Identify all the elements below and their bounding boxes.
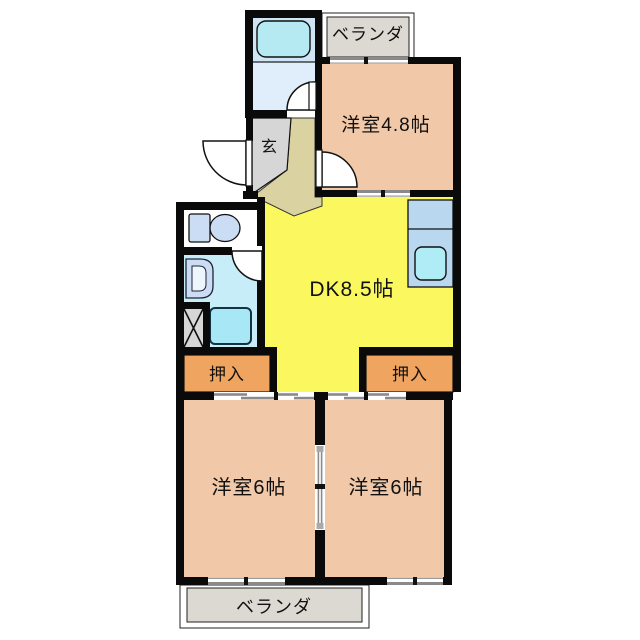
washbasin-inner — [192, 266, 206, 291]
window-room48-dk — [357, 190, 410, 197]
floor-plan-svg: ベランダ 洋室4.8帖 玄 DK8.5帖 押入 押入 洋室6帖 洋室6帖 ベラン… — [0, 0, 640, 640]
window-tick — [244, 577, 248, 585]
sliding-door-dk-right-bedroom — [328, 392, 364, 400]
floor-plan-canvas: ベランダ 洋室4.8帖 玄 DK8.5帖 押入 押入 洋室6帖 洋室6帖 ベラン… — [0, 0, 640, 640]
sliding-cap — [317, 523, 324, 529]
window-line — [330, 57, 408, 60]
window-bottom-left — [208, 577, 285, 585]
wall-segment — [285, 577, 387, 585]
wall-segment — [246, 117, 253, 141]
storage-x-icon — [184, 309, 203, 347]
wall-segment — [184, 347, 277, 355]
bedroom-left-label: 洋室6帖 — [211, 476, 286, 499]
wall-segment — [243, 191, 258, 199]
entrance-label: 玄 — [261, 138, 277, 156]
room-48-label: 洋室4.8帖 — [341, 114, 430, 136]
wall-segment — [176, 392, 214, 400]
kitchen-sink-basin — [415, 247, 446, 280]
wall-segment — [176, 202, 265, 210]
window-tick — [413, 577, 417, 585]
window-line — [330, 63, 408, 64]
toilet-bowl — [210, 215, 240, 242]
sliding-line — [214, 393, 247, 396]
wall-segment — [315, 190, 357, 197]
door-arc-entrance — [203, 140, 252, 186]
wall-segment — [245, 10, 253, 118]
sliding-tick — [315, 484, 325, 489]
wall-segment — [270, 347, 277, 392]
bedroom-right-label: 洋室6帖 — [348, 476, 423, 499]
balcony-bottom-label: ベランダ — [236, 597, 312, 617]
wall-segment — [176, 577, 208, 585]
sliding-cap — [317, 446, 324, 452]
window-tick — [381, 190, 385, 197]
washing-machine-icon — [210, 308, 251, 344]
sliding-line — [241, 397, 274, 400]
sliding-line — [294, 397, 314, 400]
wall-segment — [245, 110, 287, 118]
wall-segment — [203, 302, 210, 347]
window-tick — [364, 57, 368, 64]
wall-segment — [410, 190, 461, 197]
bathroom-door-leaf — [309, 82, 316, 110]
wall-segment — [444, 392, 452, 585]
bathtub-icon — [257, 21, 310, 57]
washbasin-icon — [186, 259, 213, 298]
toilet-tank — [189, 214, 210, 242]
balcony-top-label: ベランダ — [332, 25, 404, 44]
wall-segment — [274, 392, 278, 400]
wall-segment — [314, 392, 328, 400]
wall-segment — [315, 530, 325, 577]
wall-segment — [245, 10, 322, 18]
room-48-door-leaf — [316, 150, 322, 187]
window-top — [330, 57, 408, 64]
kitchen-sink-icon — [408, 200, 453, 287]
entrance-door-leaf — [246, 140, 252, 186]
sliding-line — [368, 393, 389, 396]
entrance-door-arc — [203, 141, 246, 185]
closet-right-label: 押入 — [392, 365, 428, 384]
wall-segment — [315, 57, 330, 64]
wall-segment — [176, 247, 232, 255]
wall-segment — [315, 10, 322, 150]
sliding-line — [385, 397, 406, 400]
sliding-door-closet-right — [368, 392, 406, 400]
sliding-line — [344, 397, 364, 400]
sliding-door-closet-left — [214, 392, 274, 400]
wall-segment — [364, 392, 368, 400]
window-bottom-right — [387, 577, 443, 585]
wall-segment — [359, 347, 366, 392]
wall-segment — [359, 347, 453, 355]
sliding-door-bedrooms — [315, 445, 325, 530]
closet-left-label: 押入 — [209, 365, 245, 384]
sliding-door-marks — [214, 392, 406, 400]
sliding-door-dk-left-bedroom — [278, 392, 314, 400]
dk-label: DK8.5帖 — [309, 278, 394, 301]
sliding-line — [278, 393, 298, 396]
wall-segment — [453, 57, 461, 392]
sliding-line — [328, 393, 348, 396]
toilet-icon — [189, 214, 240, 242]
wall-segment — [315, 400, 325, 445]
